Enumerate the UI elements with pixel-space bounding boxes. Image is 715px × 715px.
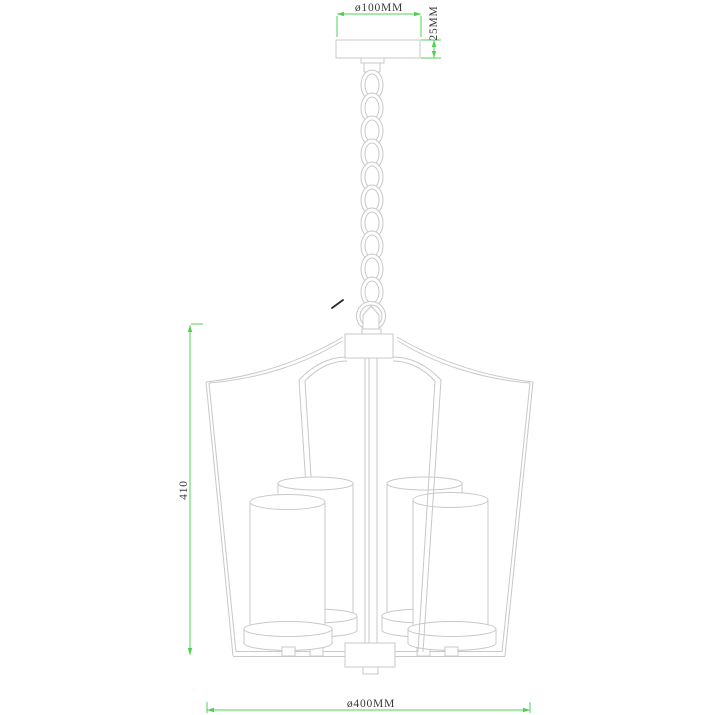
ceiling-plate bbox=[336, 40, 420, 58]
chandelier-line-drawing: ø100MM 25MM 410 ø400MM bbox=[0, 0, 715, 715]
dimension-body-height: 410 bbox=[178, 324, 203, 655]
canopy-height-label: 25MM bbox=[428, 5, 440, 40]
body-diameter-label: ø400MM bbox=[347, 698, 395, 710]
center-rod bbox=[365, 358, 377, 650]
body-height-label: 410 bbox=[178, 480, 190, 500]
dimension-body-diameter: ø400MM bbox=[207, 698, 530, 713]
technical-drawing-page: ø100MM 25MM 410 ø400MM bbox=[0, 0, 715, 715]
bottom-hub bbox=[345, 643, 395, 674]
shade-front-left bbox=[244, 495, 332, 657]
stray-mark bbox=[332, 300, 343, 308]
shade-foot bbox=[282, 647, 295, 656]
dimension-canopy-height: 25MM bbox=[421, 5, 441, 58]
loop-nipple bbox=[362, 329, 381, 334]
hanging-loop bbox=[357, 302, 386, 335]
dimension-canopy-diameter: ø100MM bbox=[337, 2, 421, 37]
shade-front-right bbox=[408, 493, 496, 657]
chain bbox=[361, 70, 383, 307]
shade-foot bbox=[445, 647, 458, 656]
top-block bbox=[345, 334, 393, 358]
canopy-diameter-label: ø100MM bbox=[355, 2, 403, 14]
bottom-hub-tab bbox=[363, 667, 378, 674]
